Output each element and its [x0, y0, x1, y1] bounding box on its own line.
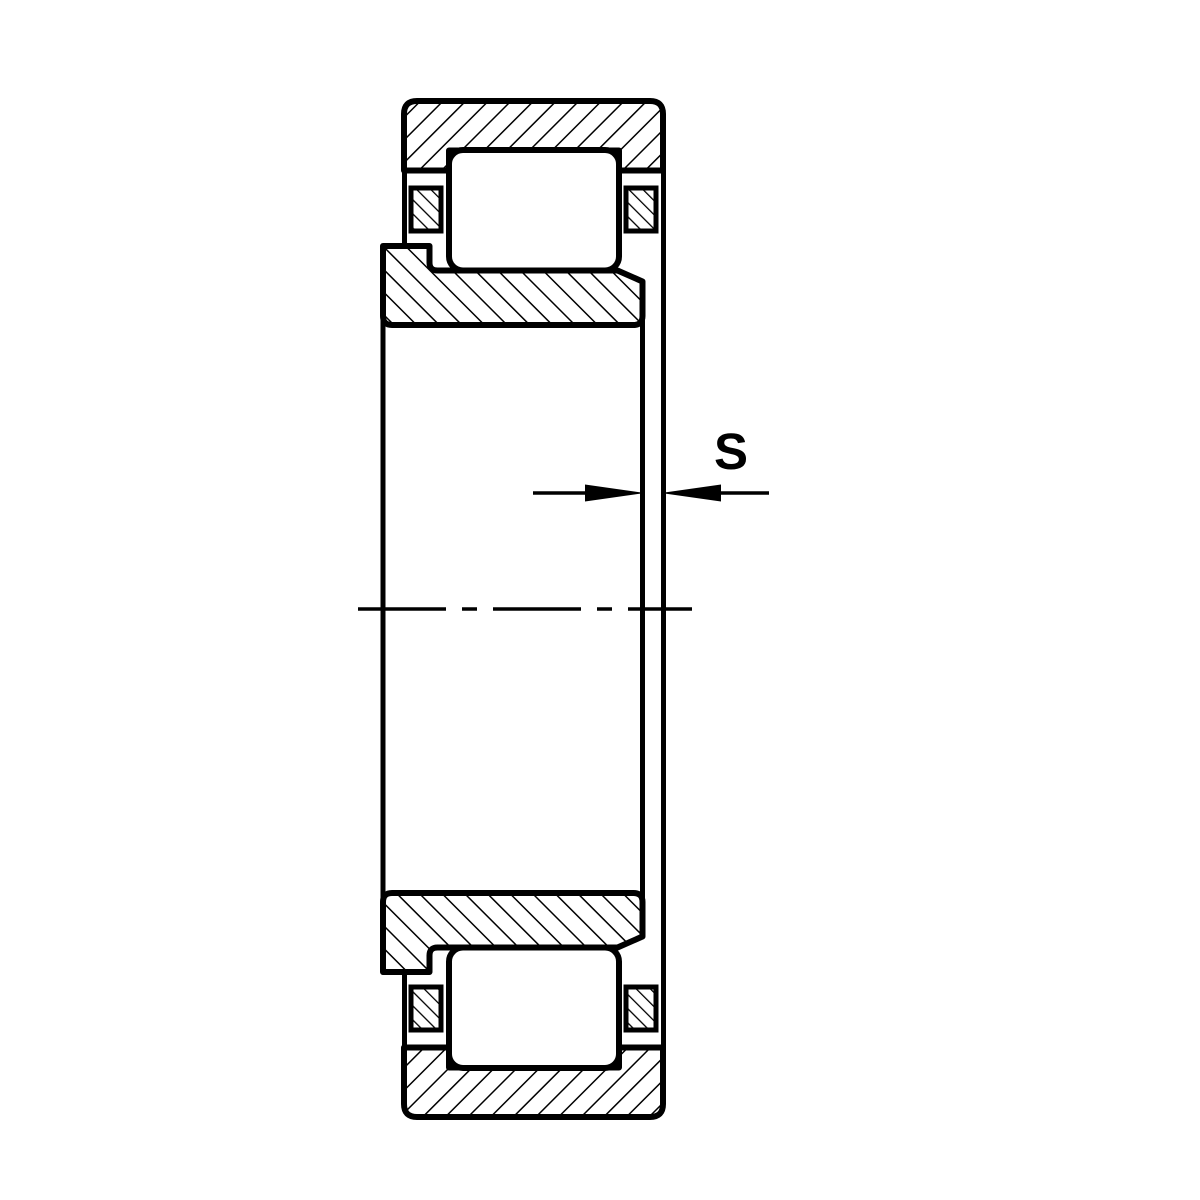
- cylindrical-roller-bearing-diagram: S: [0, 0, 1200, 1200]
- bearing-cross-section-drawing: S: [0, 0, 1200, 1200]
- cage-top-right: [626, 188, 656, 231]
- dimension-arrow-left-icon: [585, 485, 645, 502]
- roller-top: [449, 150, 619, 271]
- cage-top-left: [411, 188, 441, 231]
- dimension-s: S: [533, 423, 769, 502]
- cage-bottom-right: [626, 987, 656, 1030]
- dimension-arrow-right-icon: [661, 485, 721, 502]
- roller-bottom: [449, 948, 619, 1069]
- cage-bottom-left: [411, 987, 441, 1030]
- dimension-label-s: S: [714, 423, 748, 480]
